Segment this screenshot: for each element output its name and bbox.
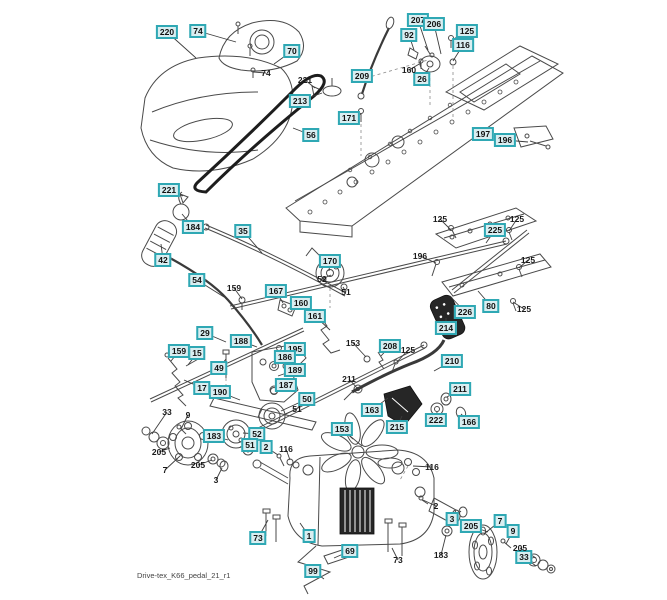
- callout-52: 52: [317, 274, 326, 284]
- callout-160[interactable]: 160: [290, 296, 312, 310]
- callout-125: 125: [433, 214, 447, 224]
- callout-153: 153: [346, 338, 360, 348]
- callout-163[interactable]: 163: [361, 403, 383, 417]
- callout-69[interactable]: 69: [341, 544, 358, 558]
- callout-51[interactable]: 51: [241, 438, 258, 452]
- callout-211[interactable]: 211: [449, 382, 471, 396]
- callout-54[interactable]: 54: [188, 273, 205, 287]
- callout-170[interactable]: 170: [319, 254, 341, 268]
- callout-186[interactable]: 186: [274, 350, 296, 364]
- callout-49[interactable]: 49: [210, 361, 227, 375]
- callout-190[interactable]: 190: [209, 385, 231, 399]
- callout-33: 33: [162, 407, 171, 417]
- callout-196[interactable]: 196: [494, 133, 516, 147]
- callout-125: 125: [510, 214, 524, 224]
- callout-205: 205: [191, 460, 205, 470]
- callout-116: 116: [425, 462, 439, 472]
- callout-183[interactable]: 183: [203, 429, 225, 443]
- callout-73[interactable]: 73: [249, 531, 266, 545]
- callout-116[interactable]: 116: [452, 38, 474, 52]
- callout-221[interactable]: 221: [158, 183, 180, 197]
- callout-213[interactable]: 213: [289, 94, 311, 108]
- callout-210[interactable]: 210: [441, 354, 463, 368]
- callout-56[interactable]: 56: [302, 128, 319, 142]
- callout-187[interactable]: 187: [275, 378, 297, 392]
- callout-205: 205: [513, 543, 527, 553]
- callout-226[interactable]: 226: [454, 305, 476, 319]
- callout-159[interactable]: 159: [168, 344, 190, 358]
- callout-2: 2: [434, 501, 439, 511]
- callout-116: 116: [279, 444, 293, 454]
- callout-1[interactable]: 1: [303, 529, 316, 543]
- callout-225[interactable]: 225: [484, 223, 506, 237]
- callout-171[interactable]: 171: [338, 111, 360, 125]
- callout-17[interactable]: 17: [193, 381, 210, 395]
- callout-208[interactable]: 208: [379, 339, 401, 353]
- callout-125[interactable]: 125: [456, 24, 478, 38]
- callout-183: 183: [434, 550, 448, 560]
- callout-80[interactable]: 80: [482, 299, 499, 313]
- callout-layer: 2207470213207206921251162092617156197196…: [0, 0, 667, 600]
- callout-70[interactable]: 70: [283, 44, 300, 58]
- diagram-filename: Drive-tex_K66_pedal_21_r1: [137, 571, 230, 580]
- callout-153[interactable]: 153: [331, 422, 353, 436]
- callout-125: 125: [517, 304, 531, 314]
- callout-221: 221: [298, 75, 312, 85]
- callout-222[interactable]: 222: [425, 413, 447, 427]
- callout-92[interactable]: 92: [400, 28, 417, 42]
- callout-211: 211: [342, 374, 356, 384]
- callout-184[interactable]: 184: [182, 220, 204, 234]
- callout-209[interactable]: 209: [351, 69, 373, 83]
- callout-29[interactable]: 29: [196, 326, 213, 340]
- callout-9: 9: [186, 410, 191, 420]
- callout-99[interactable]: 99: [304, 564, 321, 578]
- callout-73: 73: [393, 555, 402, 565]
- callout-125: 125: [401, 345, 415, 355]
- callout-167[interactable]: 167: [265, 284, 287, 298]
- callout-74[interactable]: 74: [189, 24, 206, 38]
- callout-159: 159: [227, 283, 241, 293]
- callout-125: 125: [521, 255, 535, 265]
- callout-160: 160: [402, 65, 416, 75]
- callout-3[interactable]: 3: [446, 512, 459, 526]
- callout-35[interactable]: 35: [234, 224, 251, 238]
- callout-15[interactable]: 15: [188, 346, 205, 360]
- callout-206[interactable]: 206: [423, 17, 445, 31]
- callout-9[interactable]: 9: [507, 524, 520, 538]
- callout-166[interactable]: 166: [458, 415, 480, 429]
- callout-51: 51: [292, 404, 301, 414]
- callout-7[interactable]: 7: [494, 514, 507, 528]
- callout-205: 205: [152, 447, 166, 457]
- callout-196: 196: [413, 251, 427, 261]
- callout-205[interactable]: 205: [460, 519, 482, 533]
- callout-74: 74: [261, 68, 270, 78]
- callout-2[interactable]: 2: [260, 440, 273, 454]
- callout-7: 7: [163, 465, 168, 475]
- callout-51: 51: [341, 287, 350, 297]
- callout-197[interactable]: 197: [472, 127, 494, 141]
- callout-214[interactable]: 214: [435, 321, 457, 335]
- callout-220[interactable]: 220: [156, 25, 178, 39]
- callout-3: 3: [214, 475, 219, 485]
- callout-188[interactable]: 188: [230, 334, 252, 348]
- parts-diagram-page: 2207470213207206921251162092617156197196…: [0, 0, 667, 600]
- callout-215[interactable]: 215: [386, 420, 408, 434]
- callout-189[interactable]: 189: [284, 363, 306, 377]
- callout-42[interactable]: 42: [154, 253, 171, 267]
- callout-161[interactable]: 161: [304, 309, 326, 323]
